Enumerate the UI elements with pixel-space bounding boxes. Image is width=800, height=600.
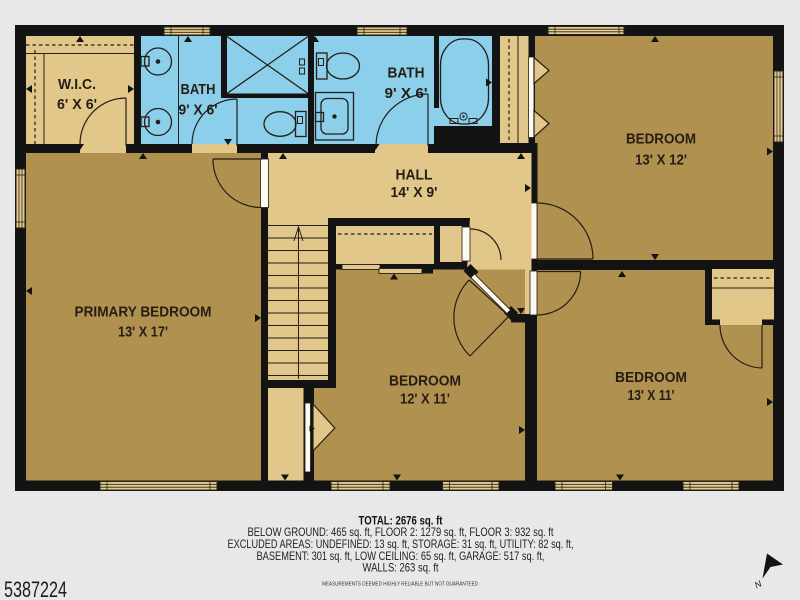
svg-text:14' X 9': 14' X 9' [391, 185, 438, 201]
svg-text:BATH: BATH [388, 66, 425, 82]
svg-text:12' X 11': 12' X 11' [400, 392, 450, 408]
svg-text:13' X 12': 13' X 12' [635, 153, 687, 169]
svg-text:5387224: 5387224 [4, 577, 67, 600]
svg-text:PRIMARY BEDROOM: PRIMARY BEDROOM [75, 305, 212, 321]
svg-text:W.I.C.: W.I.C. [58, 77, 96, 93]
svg-text:WALLS: 263 sq. ft: WALLS: 263 sq. ft [363, 561, 440, 575]
svg-text:6' X 6': 6' X 6' [57, 97, 97, 113]
svg-text:MEASUREMENTS DEEMED HIGHLY REL: MEASUREMENTS DEEMED HIGHLY RELIABLE BUT … [322, 582, 478, 588]
svg-text:BEDROOM: BEDROOM [626, 132, 696, 148]
svg-text:9' X 6': 9' X 6' [179, 103, 218, 119]
svg-text:13' X 17': 13' X 17' [118, 325, 168, 341]
svg-text:13' X 11': 13' X 11' [628, 388, 675, 404]
svg-text:BATH: BATH [181, 82, 216, 98]
svg-text:HALL: HALL [396, 168, 433, 184]
svg-text:BEDROOM: BEDROOM [615, 370, 687, 386]
svg-text:BEDROOM: BEDROOM [389, 374, 461, 390]
